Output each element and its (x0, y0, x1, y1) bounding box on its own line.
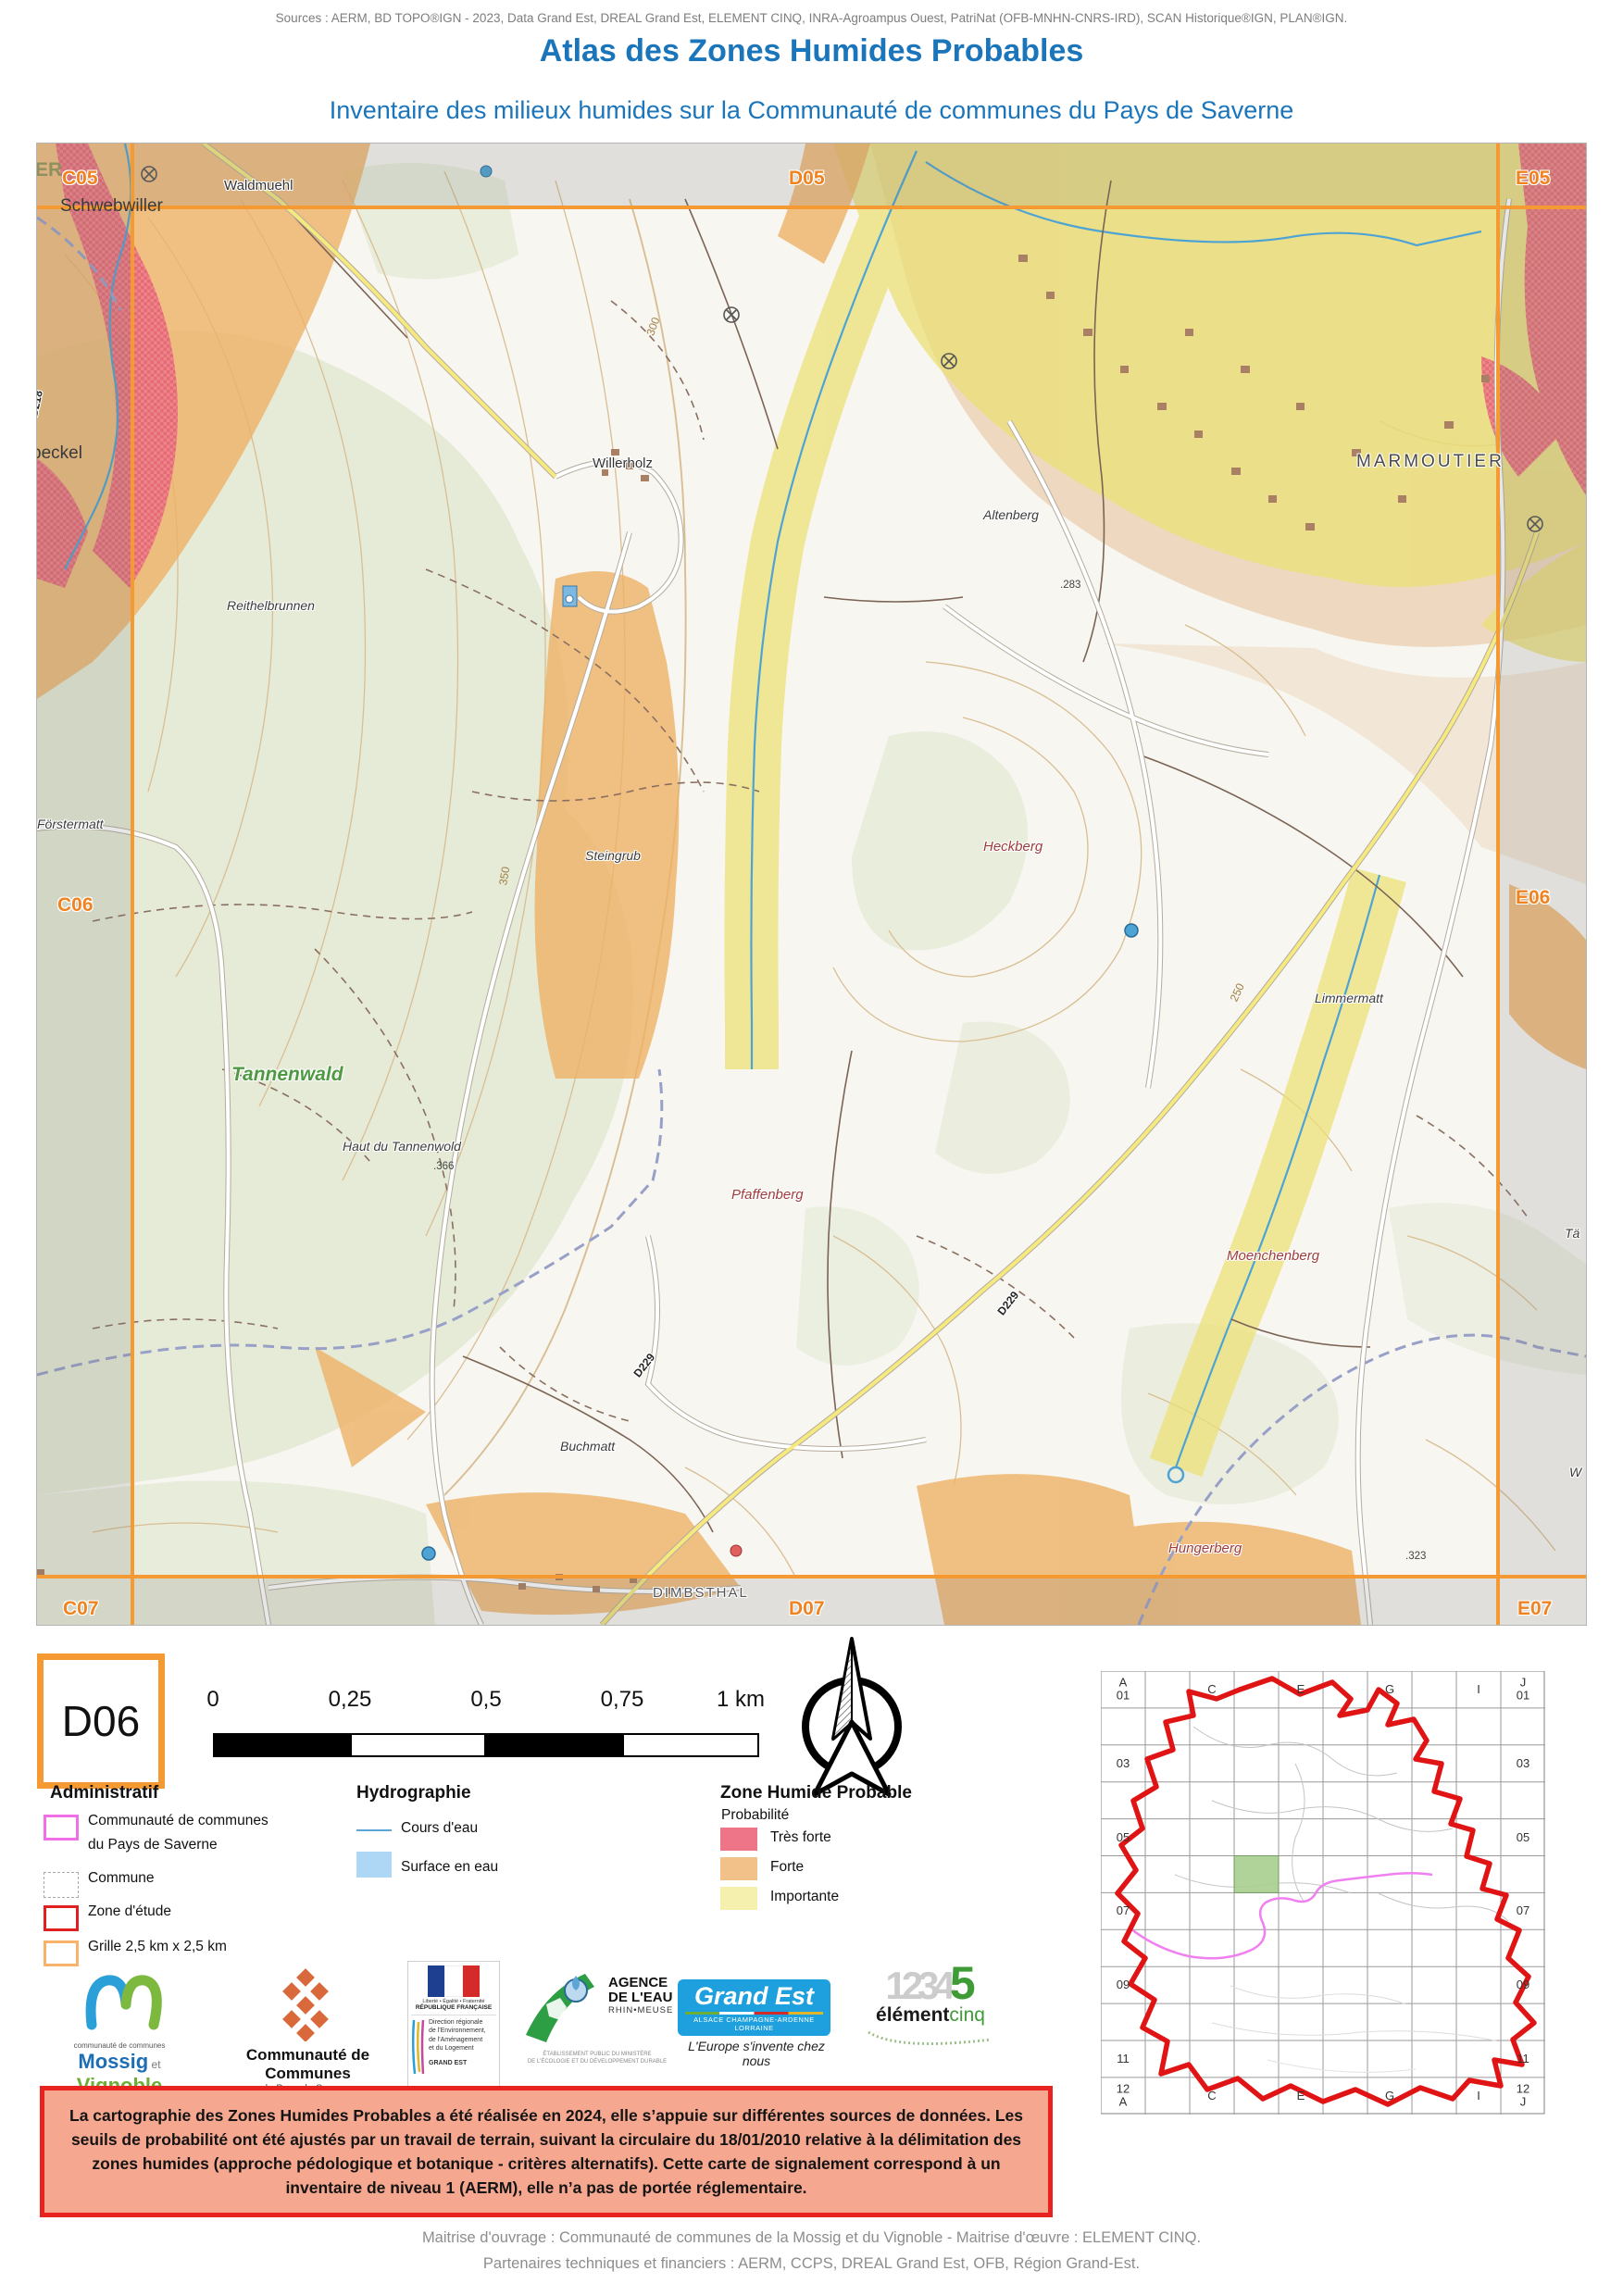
atlas-page: Sources : AERM, BD TOPO®IGN - 2023, Data… (0, 0, 1623, 2296)
logo-grandest-tagline: L'Europe s'invente chez nous (678, 2039, 835, 2068)
index-cell-label-E: E (1297, 2090, 1305, 2103)
legend-admin-label: Commune (88, 1870, 155, 1887)
logo-e5-five: 5 (950, 1957, 976, 2009)
map-label-steingrub: Steingrub (585, 849, 641, 862)
logo-e5-nums: 1234 (885, 1964, 949, 2007)
map-label-hungerberg: Hungerberg (1168, 1541, 1242, 1555)
legend-zhp-swatch-0 (720, 1828, 757, 1851)
index-cell-label-05: 05 (1517, 1830, 1529, 1843)
map-label-d218: D218 (37, 390, 44, 418)
index-cell-label-I: I (1477, 1683, 1480, 1696)
map-label-250: 250 (1229, 981, 1246, 1003)
logo-e5-word1: élément (876, 2004, 949, 2026)
index-map-artwork (1101, 1671, 1545, 2115)
legend-zhp-subheading: Probabilité (721, 1807, 789, 1824)
map-label-e07: E07 (1517, 1599, 1552, 1618)
scalebar-tick-2: 0,5 (470, 1687, 501, 1713)
map-label-e06: E06 (1516, 888, 1550, 907)
index-cell-label-07: 07 (1117, 1904, 1130, 1917)
legend-admin-label: du Pays de Saverne (88, 1837, 218, 1853)
legend-zhp-label: Forte (770, 1859, 804, 1876)
sources-line: Sources : AERM, BD TOPO®IGN - 2023, Data… (0, 11, 1623, 25)
page-title: Atlas des Zones Humides Probables (0, 33, 1623, 69)
logo-element-cinq: 12345 élémentcinq (861, 1963, 1000, 2055)
map-label-limmermatt: Limmermatt (1315, 992, 1383, 1004)
logo-grandest-name: Grand Est (678, 1982, 830, 2011)
logo-e5-word2: cinq (949, 2004, 985, 2026)
map-label-beckel: beckel (37, 444, 82, 462)
map-label-366: .366 (433, 1162, 454, 1173)
legend-admin-label: Communauté de communes (88, 1813, 268, 1829)
index-cell-label-G: G (1385, 2090, 1394, 2103)
map-label-c06: C06 (57, 895, 94, 915)
map-labels: C05D05E05C06E06C07D07E07ERSchwebwillerWa… (37, 143, 1586, 1625)
logo-ccps: Communauté de Communes du Pays de Savern… (222, 1967, 393, 2094)
index-cell-label-E: E (1297, 1683, 1305, 1696)
scalebar-tick-3: 0,75 (601, 1687, 644, 1713)
index-cell-label-12J: 12J (1517, 2083, 1529, 2110)
map-label-300: 300 (37, 1237, 39, 1256)
legend-hydro-label: Surface en eau (401, 1859, 498, 1876)
logo-grand-est: Grand Est ALSACE CHAMPAGNE-ARDENNE LORRA… (678, 1979, 835, 2068)
scalebar-segment-3 (622, 1733, 759, 1757)
legend-admin-swatch-grille (44, 1940, 79, 1966)
legend-zhp-heading: Zone Humide Probable (720, 1783, 912, 1803)
map-label-waldmuehl: Waldmuehl (224, 179, 293, 193)
map-label-reithelbrunnen: Reithelbrunnen (227, 599, 315, 612)
index-cell-label-I: I (1477, 2090, 1480, 2103)
page-subtitle: Inventaire des milieux humides sur la Co… (0, 96, 1623, 125)
logo-aerm-l1: AGENCE (608, 1976, 673, 1990)
map-label-w: W (1569, 1466, 1581, 1479)
map-label-schwebwiller: Schwebwiller (60, 197, 163, 215)
index-map: A01030507091112AJ01030507091112JCEGICEGI (1101, 1671, 1545, 2115)
scalebar-segment-0 (213, 1733, 350, 1757)
index-cell-label-11: 11 (1117, 2053, 1130, 2065)
logo-aerm-sub1: ÉTABLISSEMENT PUBLIC DU MINISTÈRE (518, 2051, 676, 2058)
map-label-hautdutannenwold: Haut du Tannenwold (343, 1140, 461, 1153)
map-label-283: .283 (1060, 580, 1080, 592)
logo-aerm-l3: RHIN•MEUSE (608, 2005, 673, 2015)
map-label-d229: D229 (631, 1352, 656, 1379)
legend-zhp-swatch-1 (720, 1857, 757, 1880)
map-label-buchmatt: Buchmatt (560, 1440, 615, 1453)
legend-zhp-label: Importante (770, 1889, 839, 1905)
logo-dreal-grandest: GRAND EST (429, 2059, 486, 2067)
logo-ccps-line1: Communauté de Communes (222, 2046, 393, 2083)
index-cell-label-03: 03 (1117, 1757, 1130, 1770)
logo-grandest-sub: ALSACE CHAMPAGNE-ARDENNE LORRAINE (678, 2015, 830, 2032)
scalebar-tick-0: 0 (206, 1687, 218, 1713)
map-label-heckberg: Heckberg (983, 840, 1042, 854)
legend-admin-heading: Administratif (50, 1783, 158, 1803)
map-label-d229: D229 (995, 1290, 1020, 1317)
logo-mossig-cc: communauté de communes (50, 2041, 189, 2050)
legend-admin-swatch-commune (44, 1872, 79, 1898)
scalebar-segment-2 (486, 1733, 622, 1757)
legend-hydro-label: Cours d'eau (401, 1820, 478, 1837)
legend-admin-swatch-zone (44, 1905, 79, 1931)
topographic-map: C05D05E05C06E06C07D07E07ERSchwebwillerWa… (37, 143, 1586, 1625)
map-label-dimbsthal: DIMBSTHAL (653, 1586, 749, 1600)
logo-mossig-name1: Mossig (78, 2050, 148, 2073)
legend-admin-swatch-cc (44, 1815, 79, 1841)
legend-admin-label: Zone d'étude (88, 1903, 171, 1920)
index-current-cell (1234, 1856, 1279, 1893)
index-cell-label-11: 11 (1517, 2053, 1529, 2065)
index-cell-label-09: 09 (1517, 1978, 1529, 1991)
map-label-frstermatt: Förstermatt (37, 817, 104, 830)
logo-dreal-l4: et du Logement (429, 2044, 486, 2053)
index-cell-label-09: 09 (1117, 1978, 1130, 1991)
legend-zhp-swatch-2 (720, 1887, 757, 1910)
index-cell-label-J01: J01 (1517, 1677, 1529, 1703)
map-label-350: 350 (497, 866, 511, 886)
logo-agence-eau: AGENCE DE L'EAU RHIN•MEUSE ÉTABLISSEMENT… (518, 1963, 676, 2066)
warning-box: La cartographie des Zones Humides Probab… (40, 2086, 1053, 2217)
logo-aerm-sub2: DE L'ÉCOLOGIE ET DU DÉVELOPPEMENT DURABL… (518, 2058, 676, 2065)
legend-hydro-fill-swatch (356, 1852, 392, 1878)
scalebar-segment-1 (350, 1733, 486, 1757)
map-label-300: 300 (644, 316, 661, 337)
scalebar-tick-4: 1 km (717, 1687, 765, 1713)
legend-admin-label: Grille 2,5 km x 2,5 km (88, 1939, 227, 1955)
map-label-tannenwald: Tannenwald (231, 1065, 343, 1084)
legend-hydro-line-swatch (356, 1829, 392, 1831)
index-cell-label-C: C (1207, 1683, 1216, 1696)
map-label-pfaffenberg: Pfaffenberg (731, 1188, 804, 1202)
index-cell-label-05: 05 (1117, 1830, 1130, 1843)
index-cell-label-07: 07 (1517, 1904, 1529, 1917)
map-label-altenberg: Altenberg (983, 508, 1039, 521)
map-label-e05: E05 (1516, 168, 1550, 188)
map-label-marmoutier: MARMOUTIER (1356, 453, 1504, 470)
credit-line-1: Maitrise d'ouvrage : Communauté de commu… (0, 2229, 1623, 2247)
logo-dreal-l3: de l'Aménagement (429, 2036, 486, 2044)
logo-mossig-et: et (148, 2058, 160, 2071)
logo-dreal-l1: Direction régionale (429, 2018, 486, 2027)
scalebar-tick-1: 0,25 (329, 1687, 372, 1713)
north-arrow (794, 1637, 909, 1802)
map-label-d05: D05 (789, 168, 825, 188)
map-label-323: .323 (1405, 1552, 1426, 1563)
logo-dreal-l2: de l'Environnement, (429, 2027, 486, 2035)
current-cell-box: D06 (37, 1653, 165, 1789)
current-cell-id: D06 (62, 1696, 140, 1746)
logo-aerm-l2: DE L'EAU (608, 1990, 673, 2005)
index-cell-label-G: G (1385, 1683, 1394, 1696)
logo-dreal-republique: RÉPUBLIQUE FRANÇAISE (411, 2004, 496, 2011)
index-cell-label-12A: 12A (1117, 2083, 1130, 2110)
index-cell-label-03: 03 (1517, 1757, 1529, 1770)
map-label-willerholz: Willerholz (593, 456, 653, 470)
legend-zhp-label: Très forte (770, 1829, 831, 1846)
map-label-c05: C05 (62, 168, 98, 188)
credit-line-2: Partenaires techniques et financiers : A… (0, 2255, 1623, 2273)
map-label-d07: D07 (789, 1599, 825, 1618)
legend-hydro-heading: Hydrographie (356, 1783, 471, 1803)
map-label-er: ER (37, 160, 62, 180)
map-label-t: Tä (1565, 1227, 1579, 1240)
index-cell-label-A01: A01 (1117, 1677, 1130, 1703)
map-label-c07: C07 (63, 1599, 99, 1618)
map-label-moenchenberg: Moenchenberg (1227, 1249, 1319, 1263)
warning-text: La cartographie des Zones Humides Probab… (69, 2103, 1024, 2201)
index-cell-label-C: C (1207, 2090, 1216, 2103)
